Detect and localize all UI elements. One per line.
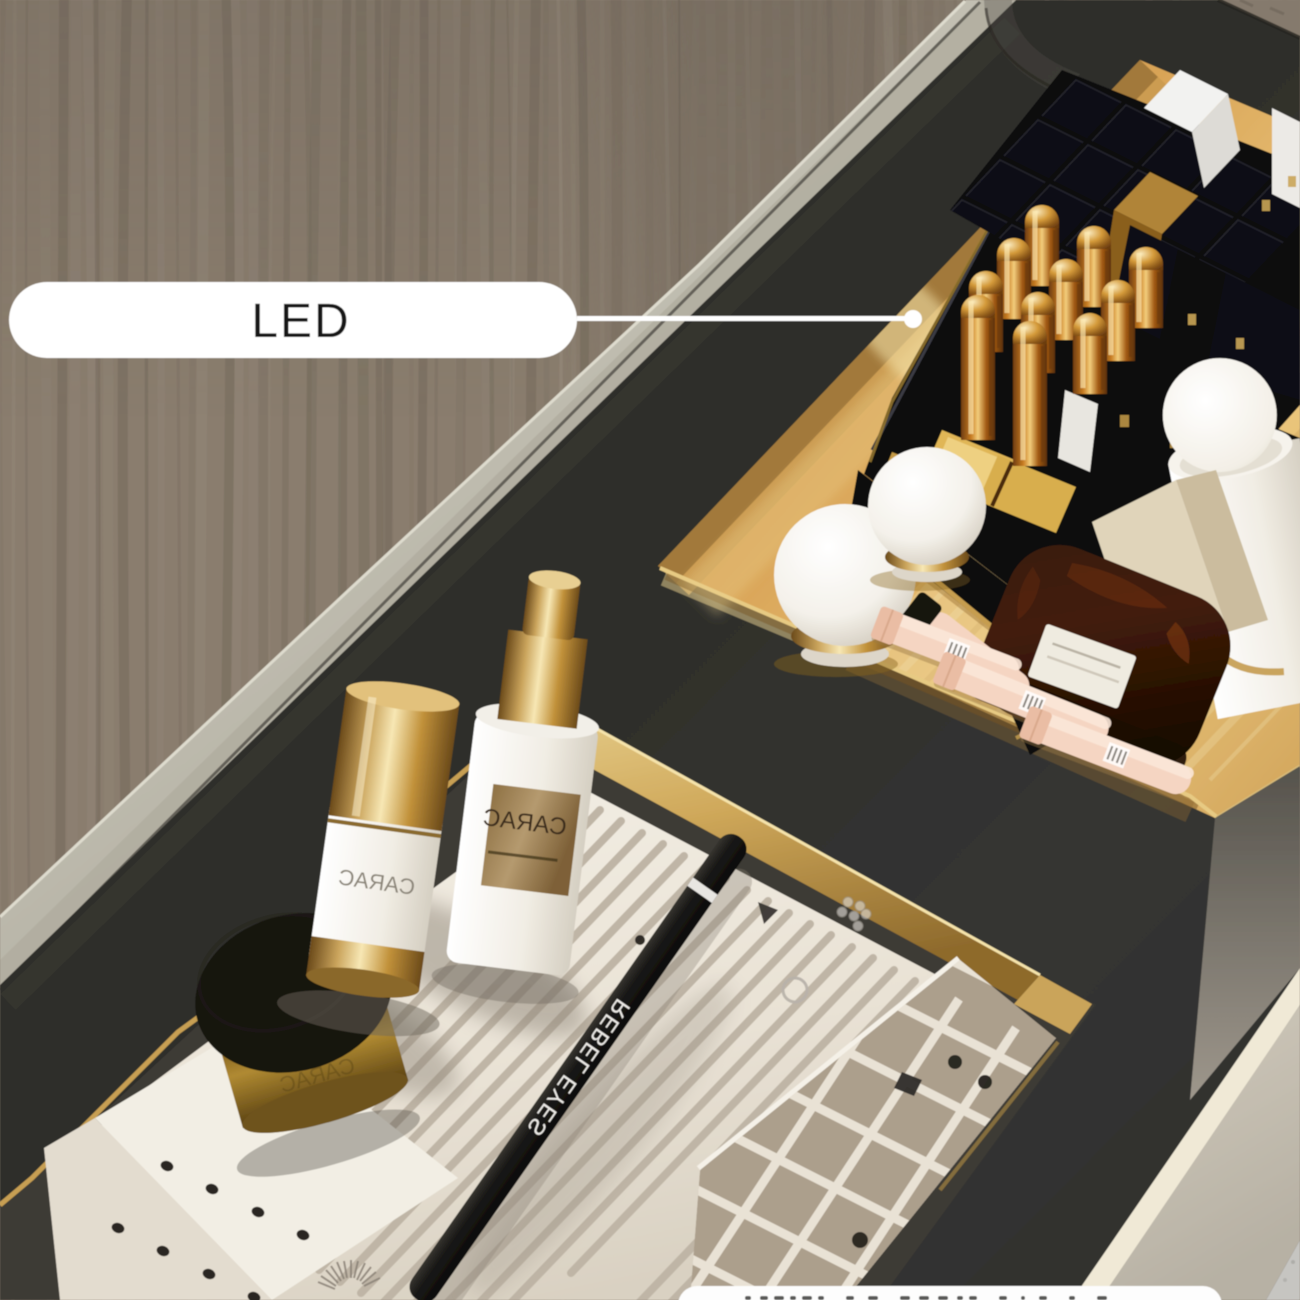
svg-text:LED: LED	[251, 295, 350, 348]
